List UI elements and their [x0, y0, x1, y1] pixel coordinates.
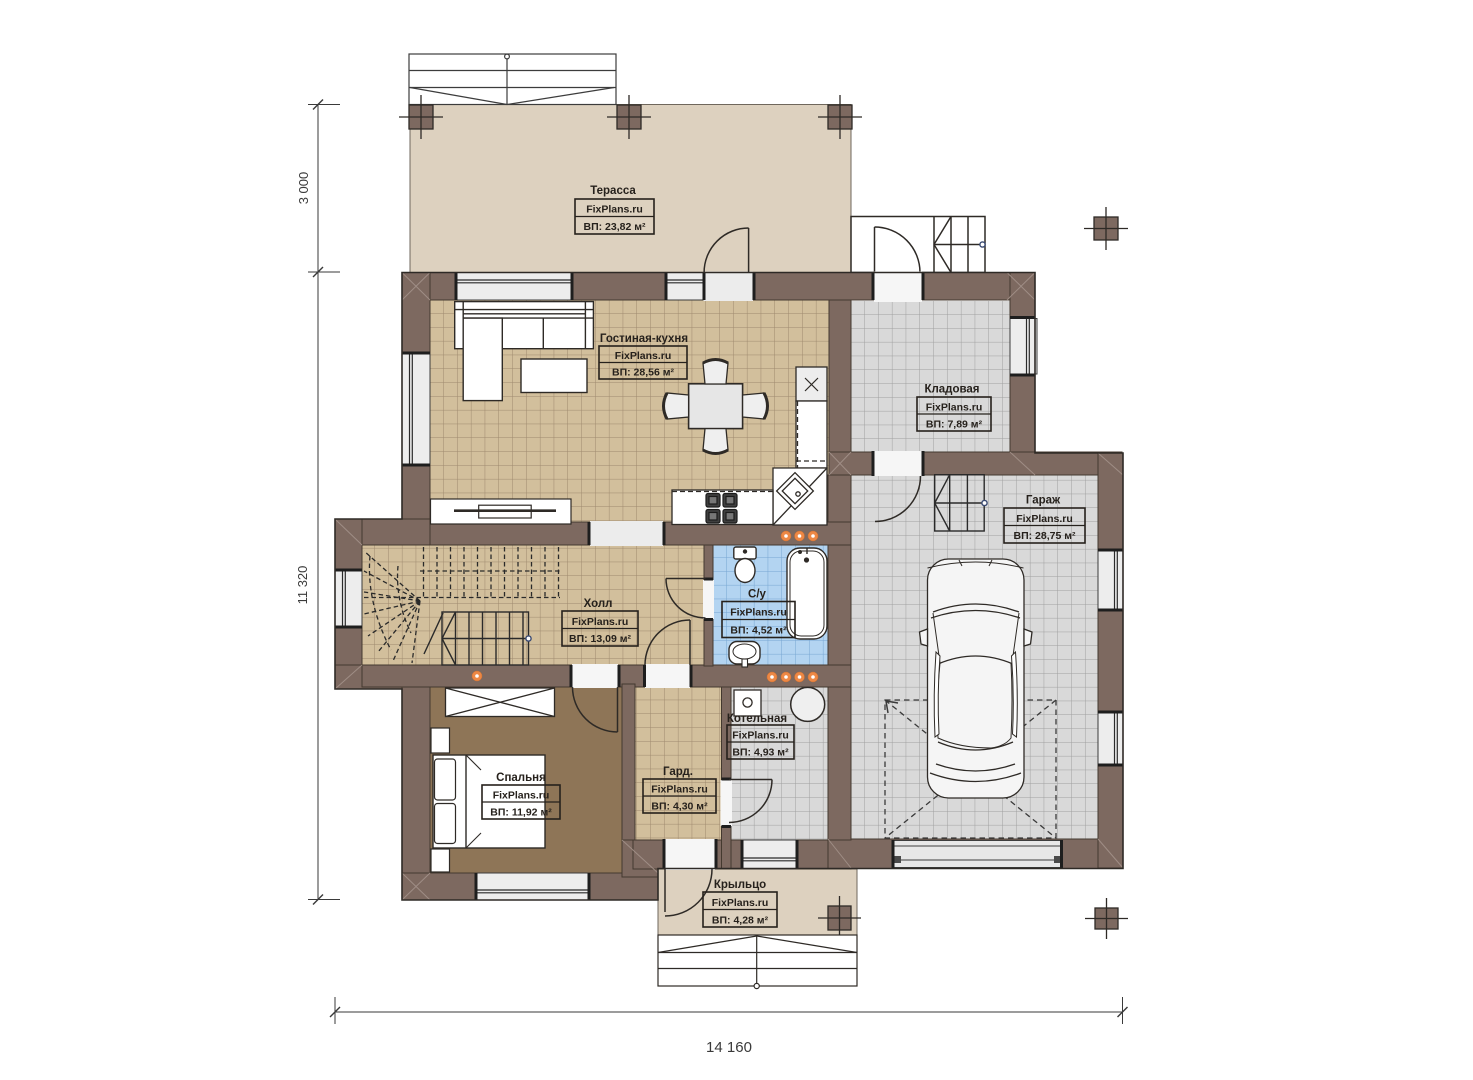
svg-text:FixPlans.ru: FixPlans.ru [1016, 513, 1073, 525]
svg-text:FixPlans.ru: FixPlans.ru [732, 730, 789, 742]
svg-text:Кладовая: Кладовая [924, 384, 979, 396]
svg-text:ВП: 4,93 м²: ВП: 4,93 м² [732, 747, 789, 759]
svg-text:ВП: 28,56 м²: ВП: 28,56 м² [612, 367, 675, 379]
svg-text:FixPlans.ru: FixPlans.ru [615, 350, 672, 362]
svg-text:FixPlans.ru: FixPlans.ru [651, 784, 708, 796]
svg-text:ВП: 13,09 м²: ВП: 13,09 м² [569, 633, 632, 645]
svg-text:FixPlans.ru: FixPlans.ru [712, 897, 769, 909]
svg-text:Крыльцо: Крыльцо [714, 879, 766, 891]
svg-text:FixPlans.ru: FixPlans.ru [572, 616, 629, 628]
svg-text:Спальня: Спальня [496, 772, 546, 784]
svg-text:Котельная: Котельная [727, 713, 787, 725]
svg-text:Гараж: Гараж [1026, 495, 1061, 507]
svg-text:ВП: 11,92 м²: ВП: 11,92 м² [490, 807, 552, 819]
svg-text:FixPlans.ru: FixPlans.ru [926, 402, 983, 414]
svg-text:С/у: С/у [748, 589, 767, 601]
svg-text:ВП: 4,52 м²: ВП: 4,52 м² [730, 625, 787, 637]
svg-text:Терасса: Терасса [590, 185, 636, 197]
svg-text:ВП: 4,28 м²: ВП: 4,28 м² [712, 915, 769, 927]
svg-text:ВП: 28,75 м²: ВП: 28,75 м² [1013, 530, 1076, 542]
svg-text:11 320: 11 320 [295, 566, 310, 605]
svg-text:FixPlans.ru: FixPlans.ru [730, 607, 787, 619]
svg-text:Гард.: Гард. [663, 766, 693, 778]
svg-text:Гостиная-кухня: Гостиная-кухня [600, 333, 688, 345]
svg-text:Холл: Холл [584, 598, 613, 610]
svg-text:FixPlans.ru: FixPlans.ru [493, 790, 550, 802]
svg-text:14 160: 14 160 [706, 1039, 752, 1056]
svg-text:ВП: 23,82 м²: ВП: 23,82 м² [583, 221, 646, 233]
svg-text:ВП: 7,89 м²: ВП: 7,89 м² [926, 419, 983, 431]
svg-text:3 000: 3 000 [296, 172, 311, 205]
svg-text:FixPlans.ru: FixPlans.ru [586, 204, 643, 216]
svg-text:ВП: 4,30 м²: ВП: 4,30 м² [651, 801, 708, 813]
